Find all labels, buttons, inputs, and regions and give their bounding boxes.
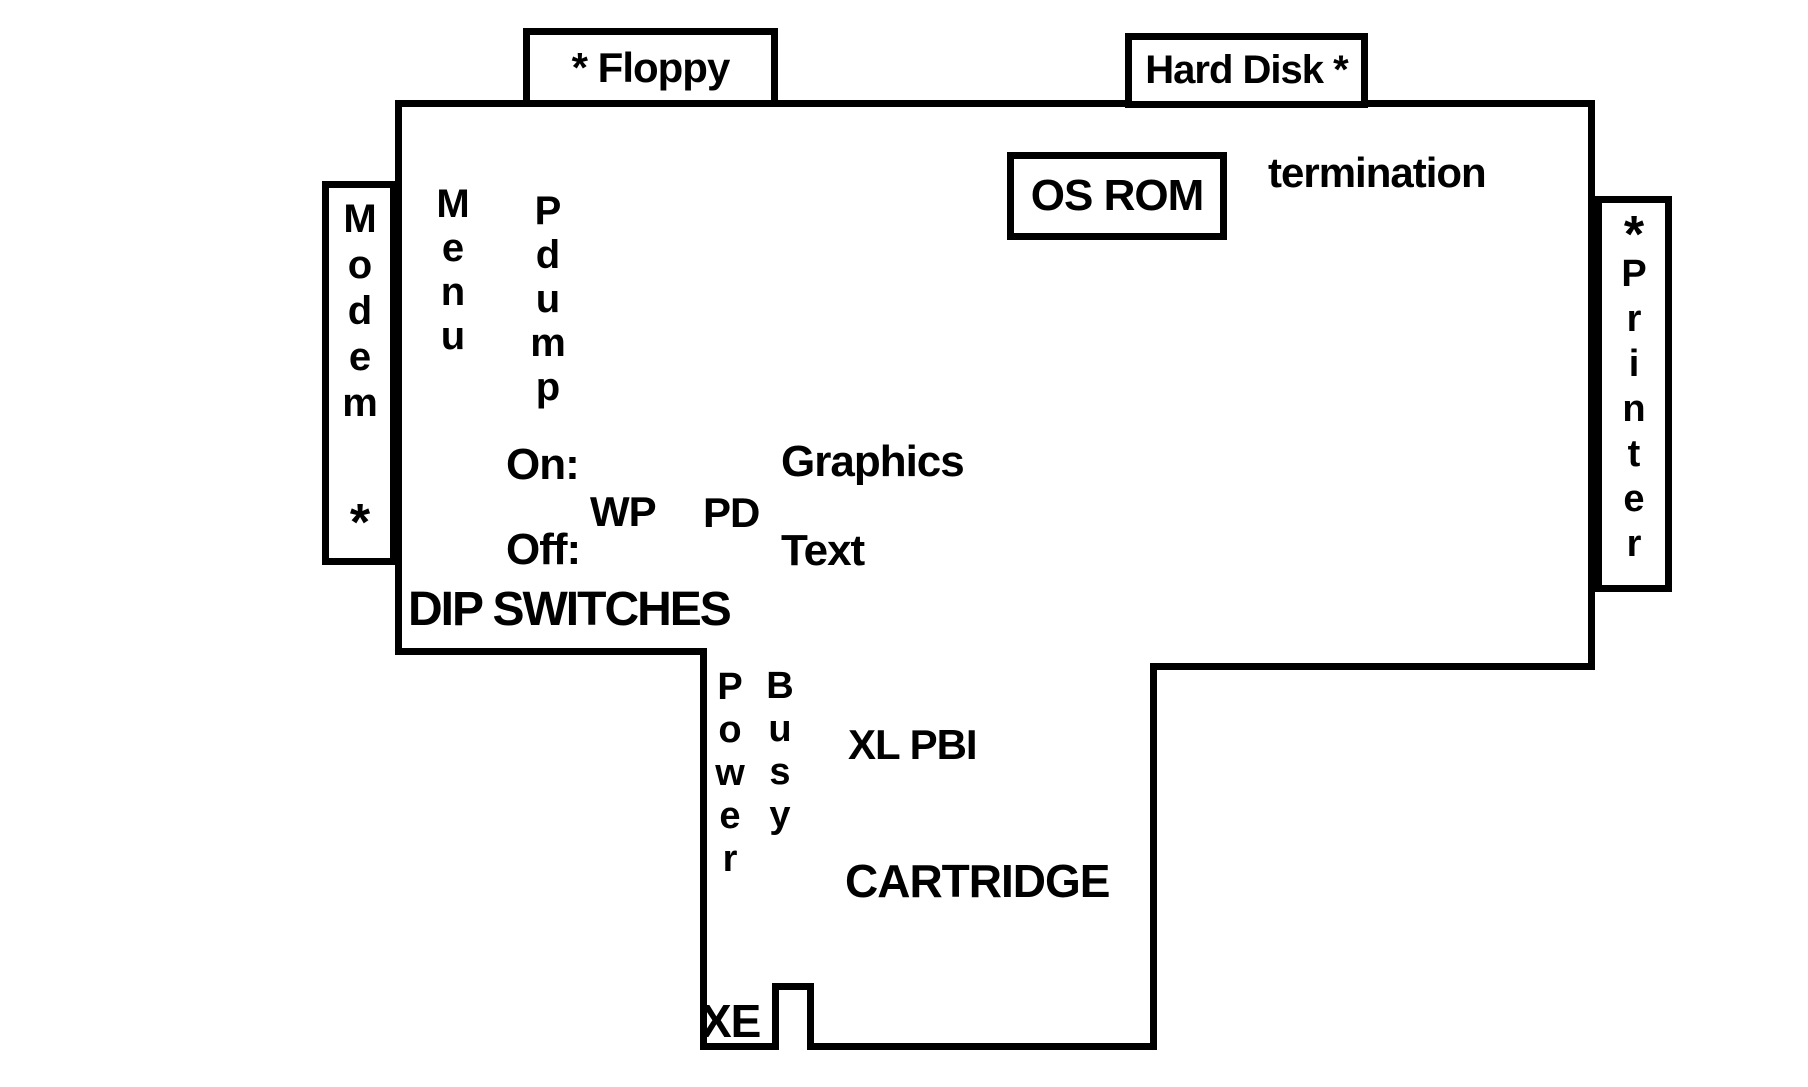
xe-label: XE bbox=[701, 998, 760, 1044]
pdump-button-label: Pdump bbox=[526, 189, 570, 409]
floppy-port-label: * Floppy bbox=[572, 44, 730, 92]
outline-extension-bottom-right bbox=[807, 1043, 1157, 1050]
dip-switch-pd-label: PD bbox=[703, 492, 759, 534]
xl-pbi-label: XL PBI bbox=[848, 724, 977, 766]
dip-off-label: Off: bbox=[506, 528, 580, 572]
outline-notch-left bbox=[772, 983, 779, 1050]
printer-port-label: Printer bbox=[1612, 252, 1656, 567]
dip-on-meaning-label: Graphics bbox=[781, 440, 964, 484]
dip-switch-wp-label: WP bbox=[590, 491, 656, 533]
hard-disk-port-label: Hard Disk * bbox=[1145, 48, 1347, 93]
scanned-board-diagram: * Floppy Hard Disk * Modem * * Printer O… bbox=[0, 0, 1808, 1087]
modem-port-label: Modem bbox=[338, 196, 382, 426]
outline-right-edge bbox=[1588, 100, 1595, 670]
dip-on-label: On: bbox=[506, 443, 579, 487]
cartridge-slot-label: CARTRIDGE bbox=[845, 858, 1109, 904]
outline-extension-left-edge bbox=[700, 648, 707, 1050]
os-rom-label: OS ROM bbox=[1031, 171, 1203, 221]
busy-led-label: Busy bbox=[758, 665, 802, 837]
power-led-label: Power bbox=[708, 666, 752, 881]
modem-asterisk: * bbox=[338, 500, 382, 547]
hard-disk-port-box: Hard Disk * bbox=[1125, 33, 1368, 108]
menu-button-label: Menu bbox=[431, 182, 475, 358]
outline-bottom-right-edge bbox=[1150, 663, 1595, 670]
dip-switches-heading: DIP SWITCHES bbox=[408, 586, 730, 634]
outline-notch-right bbox=[807, 983, 814, 1050]
outline-bottom-left-edge bbox=[395, 648, 707, 655]
floppy-port-box: * Floppy bbox=[523, 28, 778, 107]
dip-off-meaning-label: Text bbox=[781, 529, 864, 573]
outline-extension-right-edge bbox=[1150, 663, 1157, 1050]
os-rom-box: OS ROM bbox=[1007, 152, 1227, 240]
termination-label: termination bbox=[1268, 152, 1486, 194]
